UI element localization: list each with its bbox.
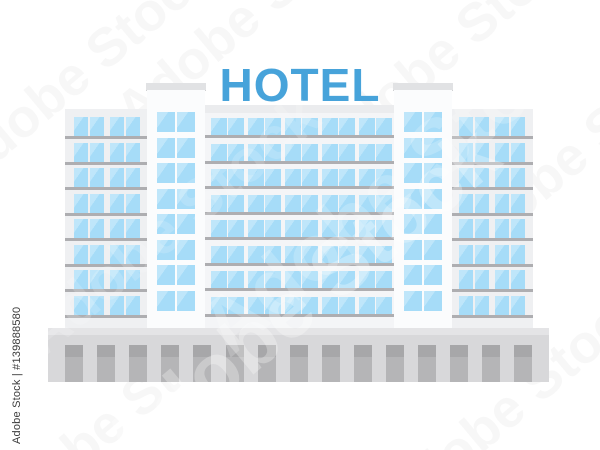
- column-capital: [450, 345, 468, 357]
- column-capital: [226, 345, 244, 357]
- column-capital: [354, 345, 372, 357]
- column-capital: [290, 345, 308, 357]
- column-capital: [482, 345, 500, 357]
- column-capital: [129, 345, 147, 357]
- column-capital: [418, 345, 436, 357]
- column-capital: [193, 345, 211, 357]
- base-platform: [0, 0, 600, 450]
- base-top-strip: [48, 328, 549, 335]
- column-capital: [322, 345, 340, 357]
- column-capital: [65, 345, 83, 357]
- stock-image-canvas: Adobe Stock Adobe Stock Adobe Stock Adob…: [0, 0, 600, 450]
- column-capital: [258, 345, 276, 357]
- column-capital: [514, 345, 532, 357]
- column-capital: [386, 345, 404, 357]
- column-capital: [161, 345, 179, 357]
- stock-id-watermark: Adobe Stock | #139888580: [11, 307, 23, 444]
- column-capital: [97, 345, 115, 357]
